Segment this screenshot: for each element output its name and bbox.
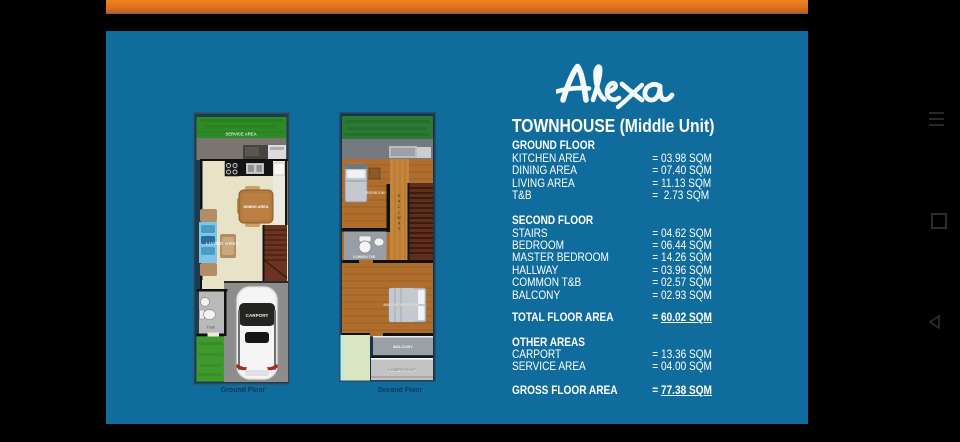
svg-text:BEDROOM 2: BEDROOM 2	[366, 191, 388, 195]
svg-text:T&B: T&B	[207, 325, 215, 330]
svg-text:CARPORT: CARPORT	[246, 313, 269, 318]
svg-text:MASTER BEDROOM: MASTER BEDROOM	[384, 303, 419, 307]
svg-text:LIVING AREA: LIVING AREA	[206, 241, 240, 246]
svg-text:DINING AREA: DINING AREA	[244, 205, 269, 209]
svg-text:LOWER ROOF: LOWER ROOF	[388, 367, 416, 372]
svg-text:BALCONY: BALCONY	[393, 344, 413, 349]
svg-text:COMMON T&B: COMMON T&B	[353, 255, 376, 259]
svg-text:SERVICE AREA: SERVICE AREA	[225, 132, 256, 137]
